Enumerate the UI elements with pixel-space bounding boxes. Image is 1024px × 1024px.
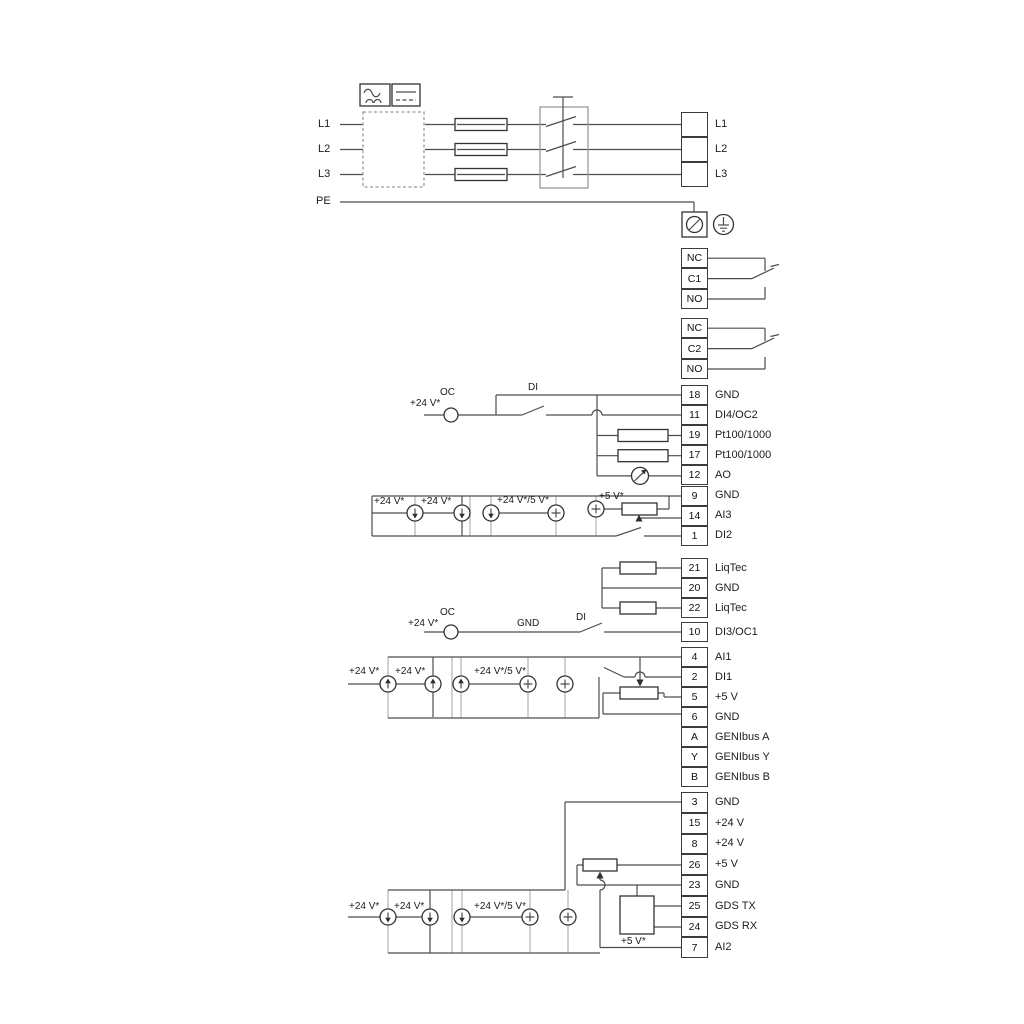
terminal-label: DI4/OC2 — [715, 409, 758, 421]
current-source-icon — [483, 505, 499, 521]
terminal-label: +5 V — [715, 691, 738, 703]
relay1-terminals-cell: NC — [681, 248, 708, 268]
liqtec-terminals-cell: 20 — [681, 578, 708, 598]
pt100-sensor-symbols — [597, 430, 681, 462]
terminal-label: DI3/OC1 — [715, 626, 758, 638]
io-terminals-upper-cell: 11 — [681, 405, 708, 425]
liqtec-terminals-cell: 22 — [681, 598, 708, 618]
current-source-icon — [454, 909, 470, 925]
relay1-terminals-cell: NO — [681, 289, 708, 309]
terminal-number: 14 — [689, 510, 701, 522]
terminal-label: AO — [715, 469, 731, 481]
io-terminals-lower-cell: 7 — [681, 937, 708, 958]
mains-label-l2: L2 — [318, 143, 330, 155]
label-plus24v-5v: +24 V*/5 V* — [474, 666, 526, 677]
relay2-terminals-cell: NC — [681, 318, 708, 338]
terminal-number: B — [691, 771, 698, 783]
terminal-label: Pt100/1000 — [715, 429, 771, 441]
terminal-label: AI2 — [715, 941, 732, 953]
current-source-icon — [425, 676, 441, 692]
terminal-number: 23 — [689, 879, 701, 891]
liqtec-terminals-cell: 21 — [681, 558, 708, 578]
label-plus24v: +24 V* — [349, 901, 379, 912]
label-plus5v: +5 V* — [621, 936, 646, 947]
terminal-label: L2 — [715, 143, 727, 155]
io-terminals-middle-cell: Y — [681, 747, 708, 767]
mains-wires — [340, 125, 681, 175]
terminal-number: 2 — [692, 671, 698, 683]
label-gnd: GND — [517, 618, 539, 629]
terminal-number: NO — [687, 363, 703, 375]
terminal-number: 1 — [692, 530, 698, 542]
terminal-number: C1 — [688, 273, 701, 285]
io-terminals-upper-cell: 14 — [681, 506, 708, 526]
terminal-label: AI3 — [715, 509, 732, 521]
io-terminals-lower-cell: 8 — [681, 834, 708, 855]
terminal-label: LiqTec — [715, 562, 747, 574]
terminal-label: GND — [715, 582, 739, 594]
current-source-icon — [407, 505, 423, 521]
terminal-label: GND — [715, 796, 739, 808]
current-source-icon — [380, 676, 396, 692]
supply-plus-icon — [548, 505, 564, 521]
oc-circle — [444, 408, 458, 422]
emc-filter-box — [363, 112, 424, 187]
io-terminals-middle-cell: 2 — [681, 667, 708, 687]
terminal-number: 4 — [692, 651, 698, 663]
terminal-label: GENIbus A — [715, 731, 769, 743]
gds-sensor-box — [620, 896, 654, 934]
terminal-label: AI1 — [715, 651, 732, 663]
earth-icon — [714, 215, 734, 235]
io-terminals-middle-cell: A — [681, 727, 708, 747]
label-plus24v: +24 V* — [421, 496, 451, 507]
io-terminals-lower-cell: 15 — [681, 813, 708, 834]
diagram-canvas — [0, 0, 1024, 1024]
terminal-number: 9 — [692, 490, 698, 502]
terminal-number: 10 — [689, 626, 701, 638]
label-di: DI — [576, 612, 586, 623]
mains-label-l3: L3 — [318, 168, 330, 180]
io-terminals-upper-cell: 1 — [681, 526, 708, 546]
io-terminals-middle-cell: 5 — [681, 687, 708, 707]
terminal-number: 20 — [689, 582, 701, 594]
terminal-label: GND — [715, 389, 739, 401]
liqtec-sensor-symbols — [602, 562, 681, 614]
io-terminals-middle-cell: B — [681, 767, 708, 787]
io-terminals-lower-cell: 23 — [681, 875, 708, 896]
terminal-label: L1 — [715, 118, 727, 130]
relay2-terminals-cell: C2 — [681, 338, 708, 358]
io-terminals-upper-cell: 9 — [681, 486, 708, 506]
io-terminals-lower-cell: 26 — [681, 854, 708, 875]
terminal-number: Y — [691, 751, 698, 763]
ai2-potentiometer — [583, 859, 617, 879]
label-oc: OC — [440, 607, 455, 618]
terminal-number: 19 — [689, 429, 701, 441]
terminal-label: +5 V — [715, 858, 738, 870]
terminal-number: C2 — [688, 343, 701, 355]
terminal-label: GND — [715, 489, 739, 501]
terminal-number: 6 — [692, 711, 698, 723]
supply-plus-icon — [560, 909, 576, 925]
pe-screw-terminal — [682, 212, 707, 237]
io-terminals-middle-cell: 4 — [681, 647, 708, 667]
terminal-number: 11 — [689, 409, 700, 421]
terminal-label: GENIbus B — [715, 771, 770, 783]
io-terminals-middle-cell: 6 — [681, 707, 708, 727]
io-terminals-upper-cell: 19 — [681, 425, 708, 445]
mains-label-l1: L1 — [318, 118, 330, 130]
terminal-number: NC — [687, 322, 702, 334]
io-terminals-lower-cell: 25 — [681, 896, 708, 917]
di3-oc1-circuit — [424, 623, 681, 632]
supply-plus-icon — [557, 676, 573, 692]
fuse-symbols — [455, 119, 507, 181]
io-terminals-upper-cell: 18 — [681, 385, 708, 405]
terminal-number: 3 — [692, 796, 698, 808]
io-terminals-upper-cell: 17 — [681, 445, 708, 465]
current-source-icon — [422, 909, 438, 925]
terminal-number: 25 — [689, 900, 701, 912]
current-source-icon — [453, 676, 469, 692]
dc-symbol-icon — [392, 84, 420, 106]
terminal-label: +24 V — [715, 837, 744, 849]
label-plus24v-5v: +24 V*/5 V* — [497, 495, 549, 506]
ai1-potentiometer — [620, 680, 658, 700]
terminal-label: GENIbus Y — [715, 751, 770, 763]
terminal-label: DI1 — [715, 671, 732, 683]
terminal-number: NO — [687, 293, 703, 305]
label-plus24v: +24 V* — [408, 618, 438, 629]
terminal-label: GND — [715, 879, 739, 891]
terminal-label: GND — [715, 711, 739, 723]
label-plus24v: +24 V* — [349, 666, 379, 677]
relay2-terminals-cell: NO — [681, 359, 708, 379]
terminal-number: 7 — [692, 942, 698, 954]
terminal-label: DI2 — [715, 529, 732, 541]
terminal-number: 17 — [689, 449, 701, 461]
label-plus5v: +5 V* — [599, 491, 624, 502]
oc-circle — [444, 625, 458, 639]
label-plus24v-5v: +24 V*/5 V* — [474, 901, 526, 912]
ac-symbol-icon — [360, 84, 390, 106]
label-plus24v: +24 V* — [410, 398, 440, 409]
relay1-terminals-cell: C1 — [681, 268, 708, 288]
mains-output-terminals-cell — [681, 112, 708, 137]
terminal-label: +24 V — [715, 817, 744, 829]
label-plus24v: +24 V* — [394, 901, 424, 912]
terminal-label: GDS TX — [715, 900, 756, 912]
supply-plus-icon — [520, 676, 536, 692]
io-terminals-upper-cell: 12 — [681, 465, 708, 485]
label-di: DI — [528, 382, 538, 393]
terminal-number: NC — [687, 252, 702, 264]
relay2-contact — [708, 328, 779, 369]
wiring-diagram: L1 L2 L3 PE +24 V* OC DI +24 V* +24 V* +… — [0, 0, 1024, 1024]
io-terminals-lower-cell: 3 — [681, 792, 708, 813]
relay1-contact — [708, 258, 779, 299]
terminal-number: 21 — [689, 562, 701, 574]
mains-label-pe: PE — [316, 195, 331, 207]
terminal-number: A — [691, 731, 698, 743]
terminal-number: 22 — [689, 602, 701, 614]
terminal-number: 24 — [689, 921, 701, 933]
mains-output-terminals-cell — [681, 162, 708, 187]
ai3-potentiometer — [622, 496, 681, 522]
current-source-icon — [454, 505, 470, 521]
terminal-number: 8 — [692, 838, 698, 850]
label-oc: OC — [440, 387, 455, 398]
terminal-number: 12 — [689, 469, 701, 481]
di3-terminal-cell: 10 — [681, 622, 708, 642]
terminal-label: LiqTec — [715, 602, 747, 614]
mains-output-terminals-cell — [681, 137, 708, 162]
label-plus24v: +24 V* — [374, 496, 404, 507]
label-plus24v: +24 V* — [395, 666, 425, 677]
terminal-label: L3 — [715, 168, 727, 180]
terminal-label: GDS RX — [715, 920, 757, 932]
terminal-number: 18 — [689, 389, 701, 401]
terminal-number: 15 — [689, 817, 701, 829]
pe-wire — [340, 202, 694, 212]
supply-plus-icon — [588, 501, 604, 517]
terminal-number: 26 — [689, 859, 701, 871]
terminal-number: 5 — [692, 691, 698, 703]
ao-meter-icon — [597, 467, 681, 484]
io-terminals-lower-cell: 24 — [681, 917, 708, 938]
terminal-label: Pt100/1000 — [715, 449, 771, 461]
